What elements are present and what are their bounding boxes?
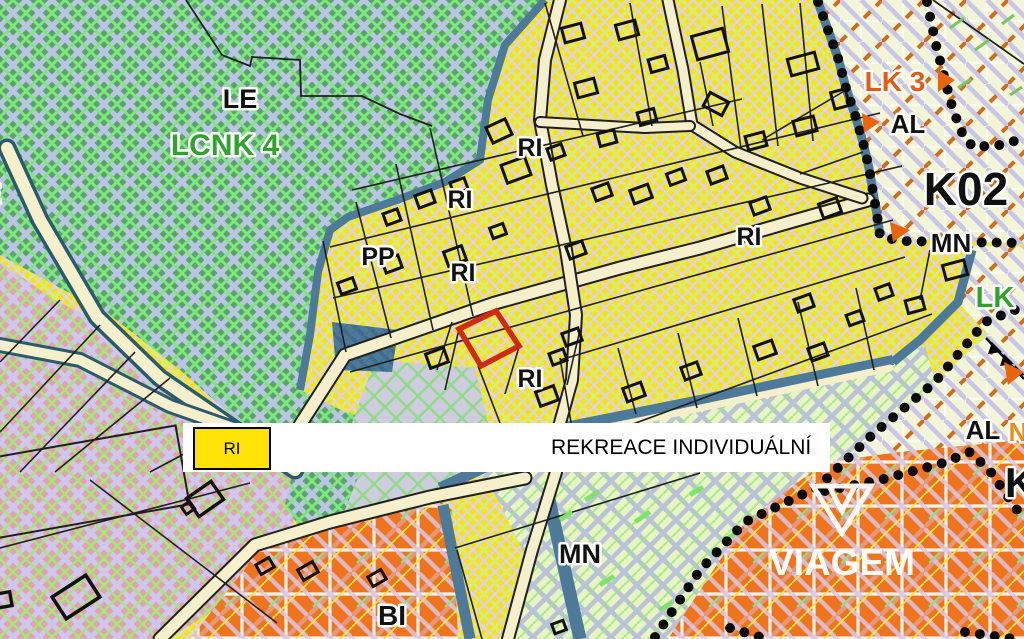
map-label-ri: RI	[518, 134, 543, 162]
map-label-bi: BI	[378, 600, 406, 631]
map-label-k02: K02	[924, 163, 1008, 215]
map-label-ri: RI	[451, 259, 476, 287]
map-label-k: K	[1005, 459, 1024, 506]
map-label-le: LE	[223, 84, 258, 114]
map-label-lcnk-4: LCNK 4	[171, 129, 280, 162]
map-label-mn: MN	[931, 228, 971, 258]
map-label-n: N	[1009, 417, 1024, 447]
legend-zone-code: RI	[224, 439, 241, 459]
legend-zone-label: REKREACE INDIVIDUÁLNÍ	[551, 423, 811, 472]
map-label-mn: MN	[559, 539, 601, 569]
map-label-lk-3: LK 3	[865, 66, 926, 97]
map-label-ri: RI	[448, 186, 473, 214]
legend-zone-swatch: RI	[193, 427, 271, 470]
map-canvas[interactable]: ELELCNK 4RIRIPPRIRIRIMNBILK 3ALK02MNLKAL…	[0, 0, 1024, 639]
map-label-ri: RI	[518, 365, 543, 393]
map-label-viagem: VIAGEM	[769, 542, 915, 583]
map-label-ri: RI	[737, 223, 762, 251]
zoning-map-viewport[interactable]: ELELCNK 4RIRIPPRIRIRIMNBILK 3ALK02MNLKAL…	[0, 0, 1024, 639]
map-label-lk: LK	[976, 282, 1015, 314]
map-label-e: E	[0, 179, 1, 209]
map-label-al: AL	[966, 415, 1001, 445]
map-label-pp: PP	[361, 243, 394, 271]
legend-bar: RI REKREACE INDIVIDUÁLNÍ	[183, 423, 830, 472]
map-label-al: AL	[891, 109, 926, 139]
